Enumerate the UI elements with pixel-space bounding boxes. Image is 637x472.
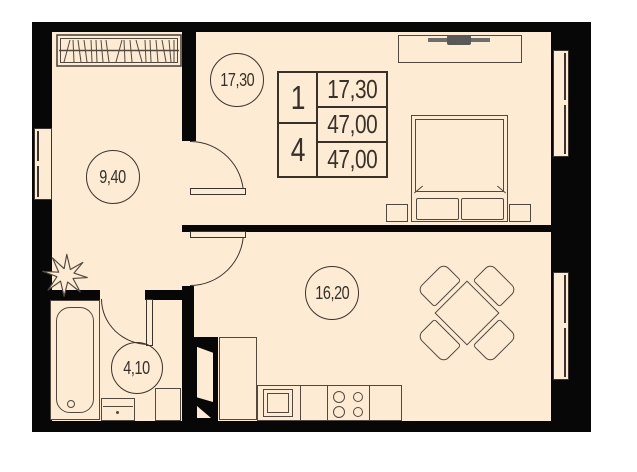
pillow — [416, 198, 459, 220]
fridge — [219, 337, 257, 420]
bathtub-inner — [56, 307, 94, 413]
window-bedroom — [553, 50, 569, 157]
room-label-hallway: 9,40 — [86, 150, 140, 204]
bathtub-drain — [67, 400, 75, 408]
nightstand — [386, 204, 408, 222]
area-table-apartment-number: 4 — [279, 124, 318, 176]
floor-plan: 17,30 9,40 16,20 4,10 1 4 17,30 47,00 47… — [0, 0, 637, 472]
area-table-total-area-2: 47,00 — [318, 143, 386, 176]
bed-mattress — [415, 119, 504, 192]
bathroom-sink-line — [103, 406, 133, 407]
window-living-glazing — [564, 328, 566, 377]
pillow — [461, 198, 504, 220]
stove-burner — [333, 406, 345, 418]
vent-shaft-opening — [197, 344, 213, 402]
wardrobe-icon — [56, 34, 182, 67]
wall-hall-bedroom — [182, 32, 196, 141]
room-area-bathroom: 4,10 — [124, 358, 150, 379]
door-leaf-bathroom — [146, 299, 153, 346]
bathroom-sink — [101, 398, 135, 421]
room-area-living-kitchen: 16,20 — [315, 283, 349, 304]
door-leaf-living — [190, 231, 246, 238]
window-left-glazing — [37, 166, 39, 197]
room-area-bedroom: 17,30 — [220, 70, 254, 91]
counter-divider — [300, 386, 301, 420]
stove-burner — [333, 391, 345, 403]
room-area-hallway: 9,40 — [100, 167, 126, 188]
window-bedroom-glazing — [564, 53, 566, 100]
counter-divider — [369, 386, 370, 420]
washing-machine — [155, 388, 181, 421]
area-table: 1 4 17,30 47,00 47,00 — [277, 71, 388, 178]
bathroom-sink-tap — [116, 411, 119, 414]
nightstand — [509, 204, 531, 222]
stove-burner — [353, 407, 363, 417]
room-label-living-kitchen: 16,20 — [305, 266, 359, 320]
wall-hall-kitchen — [182, 286, 194, 421]
plant-icon — [40, 248, 90, 300]
counter-divider — [327, 386, 328, 420]
window-bedroom-glazing — [564, 105, 566, 154]
window-left-glazing — [37, 131, 39, 161]
room-label-bathroom: 4,10 — [111, 342, 163, 394]
area-table-total-area: 47,00 — [318, 108, 386, 143]
area-table-rooms-count: 1 — [279, 73, 318, 124]
window-living-glazing — [564, 275, 566, 323]
tv-icon-center — [447, 35, 471, 45]
window-living — [553, 272, 569, 380]
door-leaf-bedroom — [190, 188, 246, 195]
area-table-living-area: 17,30 — [318, 73, 386, 108]
vent-shaft-flap — [197, 406, 211, 418]
stove-burner — [353, 392, 363, 402]
room-label-bedroom: 17,30 — [210, 53, 264, 107]
vent-shaft — [194, 337, 218, 421]
kitchen-sink-inner — [267, 393, 289, 413]
